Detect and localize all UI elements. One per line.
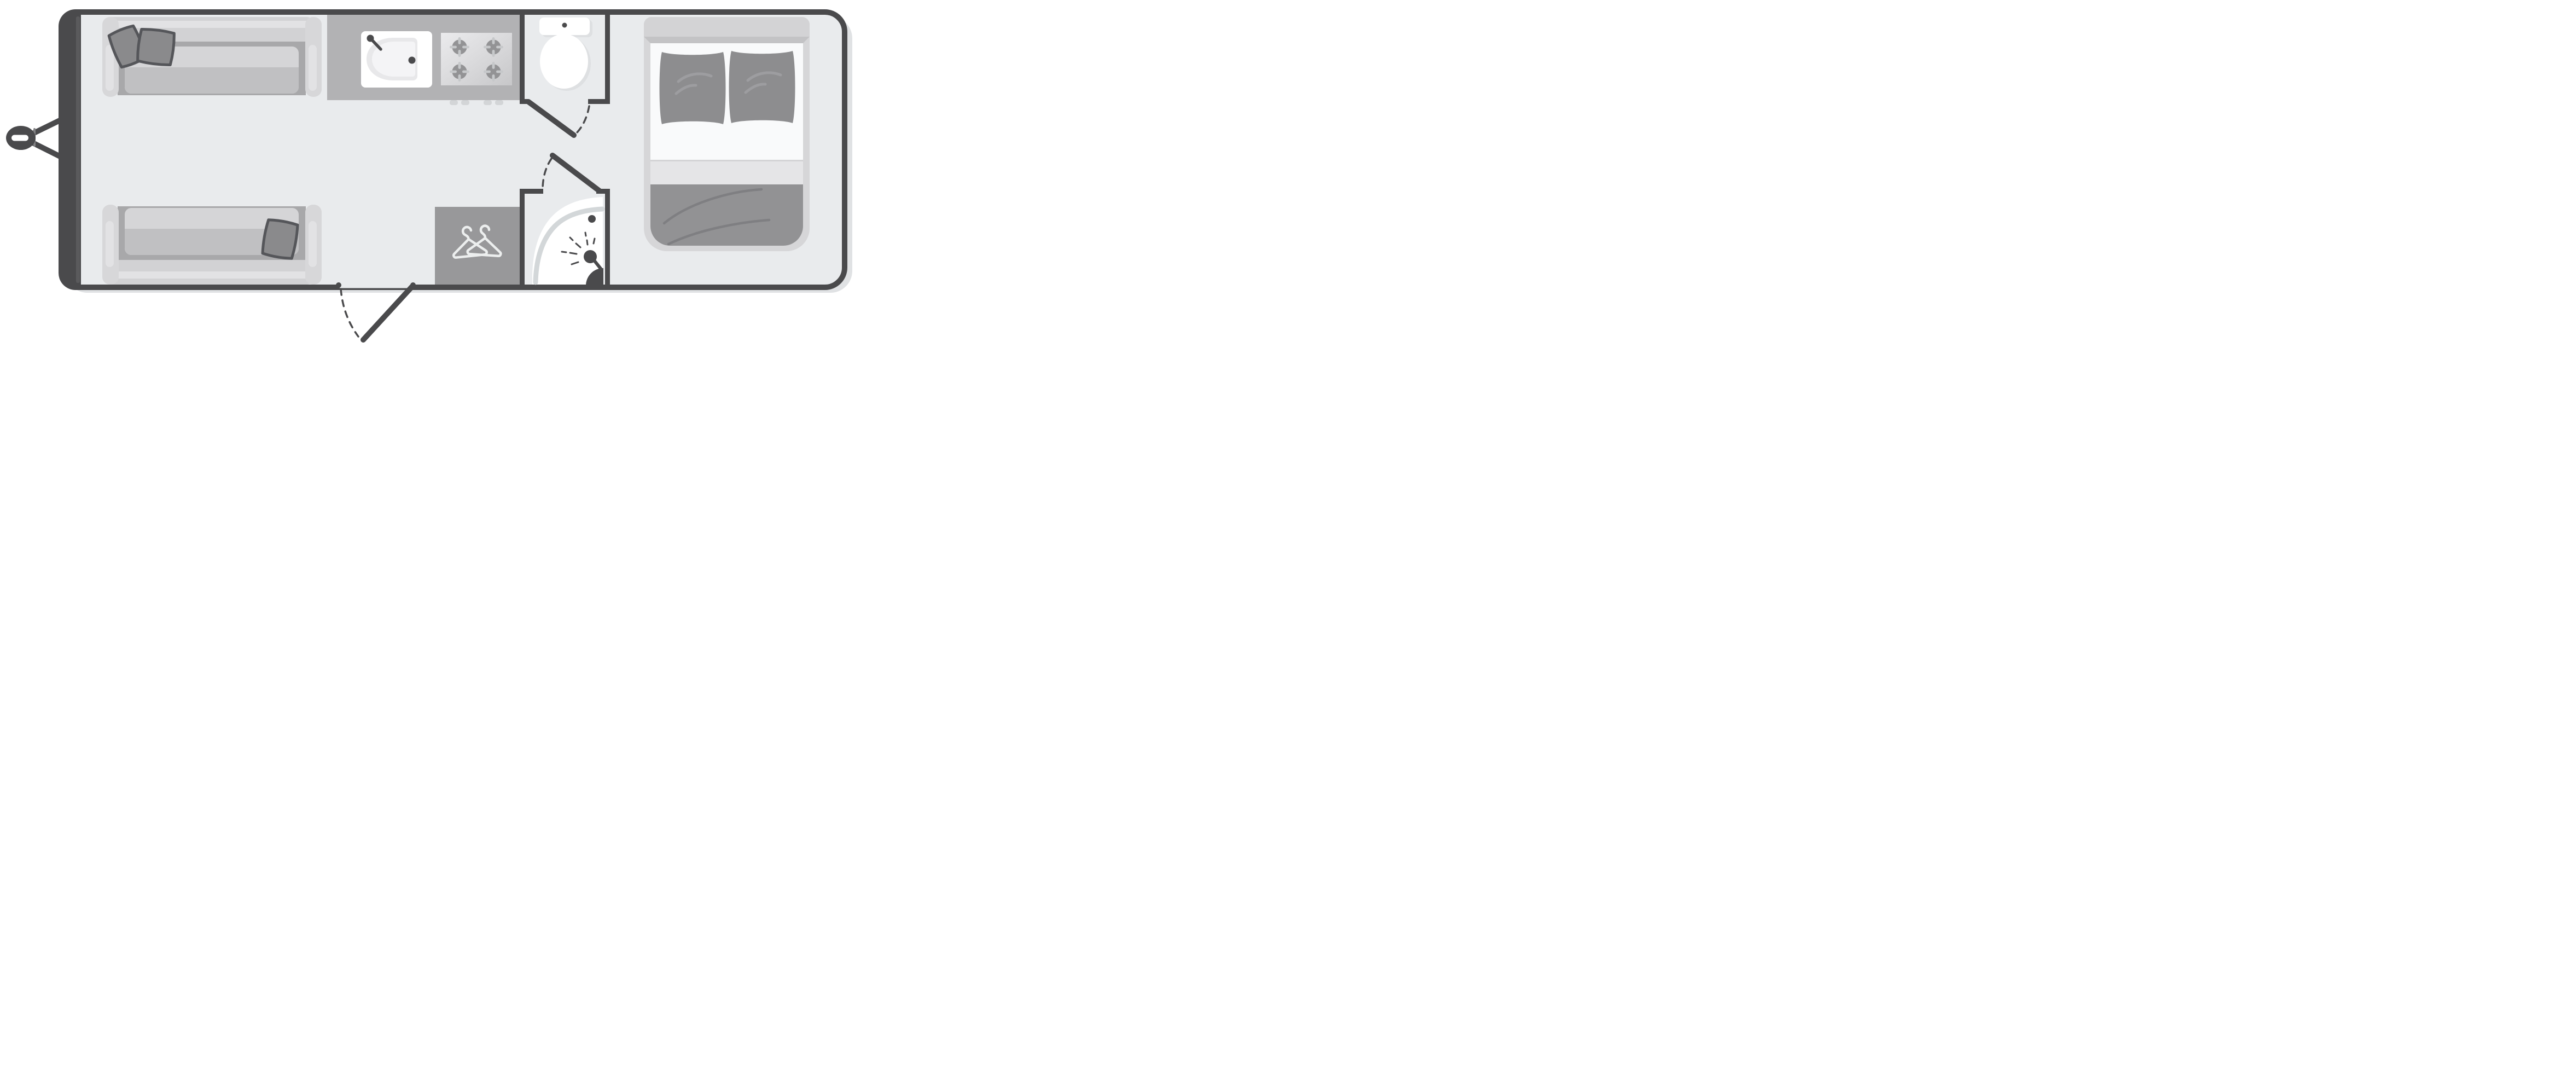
floorplan-canvas [0,0,859,357]
kitchen [327,15,520,105]
toilet-wall-bottom-right-stub [588,99,610,104]
wardrobe [435,207,520,285]
toilet-wall-right [605,15,610,104]
entry-door-opening [340,281,412,288]
scatter-cushion-2 [136,28,175,66]
hitch-coupler-slot [11,135,28,141]
entry-door-swing-arc [341,289,358,337]
sofa-top-cushion-front [125,67,299,94]
toilet-flush-button [562,23,567,28]
toilet-bowl [540,34,588,89]
shower-wall-right [605,189,610,285]
bed-pillow-right [729,51,795,123]
sofa-bottom-backrest [105,257,313,285]
hob-knob-4 [495,100,503,105]
entry-wall-end-left [336,282,341,288]
sofa-bottom [102,205,322,285]
bed-folded-sheet [650,161,803,184]
hob-knob-2 [461,100,469,105]
kitchen-sink [361,31,432,88]
sofa-top-armrest-right-pad [309,45,317,91]
scatter-cushion-3 [261,218,299,259]
bedroom [644,17,810,251]
hob-knob-3 [484,100,492,105]
entry-door-leaf [363,287,412,340]
sofa-top-armrest-left-pad [106,45,114,91]
bed-head-band [644,17,810,37]
sofa-bottom-armrest-right-pad [309,221,317,267]
sofa-top [102,17,322,97]
bed-sheet-shadow-line [650,160,803,161]
sofa-bottom-backrest-highlight [112,271,313,279]
toilet-wall-left [520,15,525,104]
gas-hob [441,33,512,85]
front-wall-cap-inner [76,16,80,283]
bed-pillow-left [660,52,726,124]
sofa-bottom-armrest-left-pad [106,221,114,267]
hob-knob-1 [450,100,458,105]
shower-wall-left [520,189,525,285]
shower-drain [588,215,596,223]
sofa-top-backrest-highlight [112,21,313,28]
caravan-floorplan [0,0,859,357]
hob-panel [441,33,512,85]
bed-head-bevel [644,37,810,43]
sink-drain [409,57,416,64]
